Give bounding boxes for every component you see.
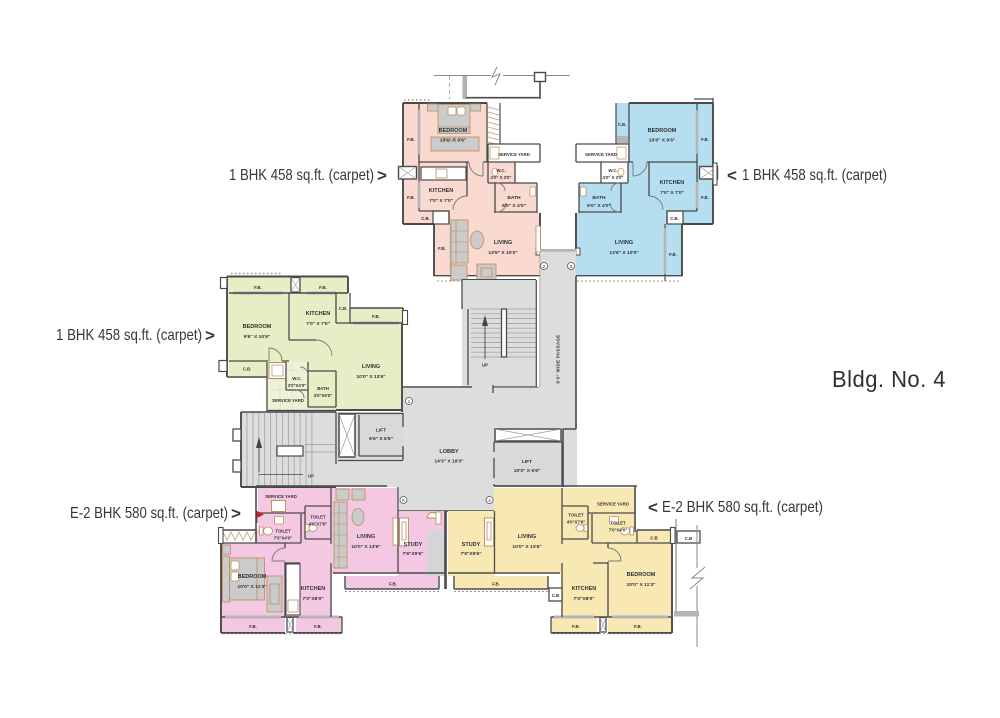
svg-text:10'0" X 13'6": 10'0" X 13'6" — [512, 544, 541, 550]
svg-text:>: > — [231, 504, 241, 523]
svg-text:10'0" X 6'6": 10'0" X 6'6" — [514, 468, 541, 474]
svg-text:TOILET: TOILET — [310, 515, 326, 520]
svg-text:BEDROOM: BEDROOM — [648, 128, 677, 134]
svg-text:TOILET: TOILET — [568, 513, 584, 518]
svg-text:C.B: C.B — [650, 536, 657, 541]
svg-text:10'0" X 11'3": 10'0" X 11'3" — [238, 584, 267, 590]
svg-text:F.B.: F.B. — [389, 582, 397, 587]
svg-text:F.B.: F.B. — [407, 195, 415, 200]
svg-text:SERVICE YARD: SERVICE YARD — [498, 152, 530, 157]
svg-text:F.B.: F.B. — [669, 252, 677, 257]
svg-text:7'0"X8'0": 7'0"X8'0" — [573, 596, 594, 602]
svg-text:<: < — [648, 498, 658, 517]
svg-text:F.B.: F.B. — [438, 246, 446, 251]
svg-text:KITCHEN: KITCHEN — [306, 311, 330, 317]
svg-text:>: > — [377, 166, 387, 185]
svg-text:13'6" X 10'0": 13'6" X 10'0" — [488, 250, 517, 256]
svg-text:KITCHEN: KITCHEN — [660, 180, 684, 186]
svg-text:F.B.: F.B. — [314, 624, 322, 629]
svg-text:6'0" X 4'0": 6'0" X 4'0" — [502, 203, 526, 209]
svg-text:1 BHK 458 sq.ft. (carpet): 1 BHK 458 sq.ft. (carpet) — [229, 167, 374, 184]
svg-text:C.B.: C.B. — [421, 216, 430, 221]
svg-text:7'0" X 7'0": 7'0" X 7'0" — [429, 198, 453, 204]
svg-text:F.B.: F.B. — [492, 582, 500, 587]
svg-text:F.B.: F.B. — [701, 195, 709, 200]
svg-text:F.B.: F.B. — [254, 285, 262, 290]
svg-text:TOILET: TOILET — [610, 521, 626, 526]
svg-text:UP: UP — [308, 474, 314, 479]
svg-text:1 BHK 458 sq.ft. (carpet): 1 BHK 458 sq.ft. (carpet) — [742, 167, 887, 184]
svg-text:F.B.: F.B. — [372, 314, 380, 319]
svg-text:C.B.: C.B. — [670, 216, 679, 221]
svg-text:Bldg. No. 4: Bldg. No. 4 — [832, 366, 946, 392]
svg-text:4'0"X7'6": 4'0"X7'6" — [567, 520, 586, 525]
svg-text:LOBBY: LOBBY — [439, 449, 459, 455]
svg-text:SERVICE YARD: SERVICE YARD — [585, 152, 617, 157]
svg-text:C.B.: C.B. — [339, 306, 348, 311]
svg-text:LIVING: LIVING — [518, 534, 536, 540]
svg-text:BATH: BATH — [592, 195, 606, 201]
svg-text:C.B.: C.B. — [618, 122, 627, 127]
svg-text:LIFT: LIFT — [522, 459, 532, 465]
svg-text:LIVING: LIVING — [615, 240, 633, 246]
svg-text:C.B.: C.B. — [243, 367, 252, 372]
svg-text:BEDROOM: BEDROOM — [439, 128, 468, 134]
svg-text:SERVICE YARD: SERVICE YARD — [272, 398, 304, 403]
svg-text:LIFT: LIFT — [376, 428, 386, 434]
svg-text:KITCHEN: KITCHEN — [429, 188, 453, 194]
svg-text:BEDROOM: BEDROOM — [627, 572, 656, 578]
svg-text:STUDY: STUDY — [404, 542, 423, 548]
svg-text:10'0" X 13'6": 10'0" X 13'6" — [356, 374, 385, 380]
svg-text:F.B.: F.B. — [249, 624, 257, 629]
svg-text:4'0" X 3'0": 4'0" X 3'0" — [603, 175, 624, 180]
svg-text:4: 4 — [488, 498, 491, 504]
svg-text:KITCHEN: KITCHEN — [572, 586, 596, 592]
svg-text:BATH: BATH — [317, 386, 329, 391]
svg-text:7'0" X 7'0": 7'0" X 7'0" — [660, 190, 684, 196]
svg-text:1: 1 — [408, 399, 411, 405]
svg-text:LIVING: LIVING — [362, 364, 380, 370]
svg-text:C.B: C.B — [552, 593, 559, 598]
svg-text:LIVING: LIVING — [357, 534, 375, 540]
svg-text:7'0"X4'0": 7'0"X4'0" — [609, 528, 628, 533]
svg-text:BATH: BATH — [507, 195, 521, 201]
svg-text:E-2 BHK 580 sq.ft. (carpet): E-2 BHK 580 sq.ft. (carpet) — [70, 505, 228, 522]
svg-text:KITCHEN: KITCHEN — [301, 586, 325, 592]
svg-text:7'0"X8'0": 7'0"X8'0" — [302, 596, 323, 602]
svg-text:10'6" X 9'6": 10'6" X 9'6" — [440, 138, 467, 144]
svg-text:3'0"X4'0": 3'0"X4'0" — [288, 383, 307, 388]
svg-text:4'0" X 3'0": 4'0" X 3'0" — [491, 175, 512, 180]
svg-text:SERVICE YARD: SERVICE YARD — [597, 502, 629, 507]
svg-text:E-2 BHK 580 sq.ft. (carpet): E-2 BHK 580 sq.ft. (carpet) — [662, 499, 823, 516]
svg-text:1 BHK 458 sq.ft. (carpet): 1 BHK 458 sq.ft. (carpet) — [56, 327, 202, 344]
svg-text:<: < — [727, 166, 737, 185]
svg-text:3: 3 — [570, 264, 573, 270]
svg-text:C.B: C.B — [685, 536, 692, 541]
svg-text:BEDROOM: BEDROOM — [238, 574, 267, 580]
svg-text:10'6" X 9'6": 10'6" X 9'6" — [649, 138, 676, 144]
svg-text:4'0"X7'6": 4'0"X7'6" — [309, 522, 328, 527]
svg-text:F.B.: F.B. — [701, 137, 709, 142]
svg-text:W.C.: W.C. — [496, 168, 505, 173]
svg-text:2: 2 — [543, 264, 546, 270]
svg-text:SERVICE YARD: SERVICE YARD — [265, 494, 297, 499]
svg-text:13'6" X 10'0": 13'6" X 10'0" — [609, 250, 638, 256]
svg-text:6'0" X 4'0": 6'0" X 4'0" — [587, 203, 611, 209]
svg-text:5: 5 — [402, 498, 405, 504]
svg-text:STUDY: STUDY — [462, 542, 481, 548]
svg-text:7'0"X4'0": 7'0"X4'0" — [274, 536, 293, 541]
svg-text:7'6"X9'6": 7'6"X9'6" — [402, 551, 423, 557]
svg-text:W.C.: W.C. — [292, 376, 301, 381]
svg-text:10'0" X 11'3": 10'0" X 11'3" — [627, 582, 656, 588]
svg-text:7'0" X 7'0": 7'0" X 7'0" — [306, 321, 330, 327]
svg-text:W.C.: W.C. — [608, 168, 617, 173]
svg-text:>: > — [205, 326, 215, 345]
svg-text:F.B.: F.B. — [407, 137, 415, 142]
svg-text:LIVING: LIVING — [494, 240, 512, 246]
svg-text:F.B.: F.B. — [572, 624, 580, 629]
svg-text:10'0" X 13'6": 10'0" X 13'6" — [351, 544, 380, 550]
svg-text:TOILET: TOILET — [275, 529, 291, 534]
svg-text:6'0" WIDE PASSAGE: 6'0" WIDE PASSAGE — [556, 335, 561, 384]
svg-text:UP: UP — [482, 363, 488, 368]
svg-text:4'0"X6'0": 4'0"X6'0" — [314, 393, 333, 398]
svg-text:14'3" X 19'3": 14'3" X 19'3" — [434, 459, 463, 465]
svg-text:BEDROOM: BEDROOM — [243, 324, 272, 330]
svg-text:6'6" X 6'6": 6'6" X 6'6" — [369, 436, 393, 442]
svg-text:9'6" X 10'6": 9'6" X 10'6" — [244, 334, 271, 340]
svg-text:7'6"X9'6": 7'6"X9'6" — [460, 551, 481, 557]
svg-text:F.B.: F.B. — [634, 624, 642, 629]
svg-text:F.B.: F.B. — [319, 285, 327, 290]
